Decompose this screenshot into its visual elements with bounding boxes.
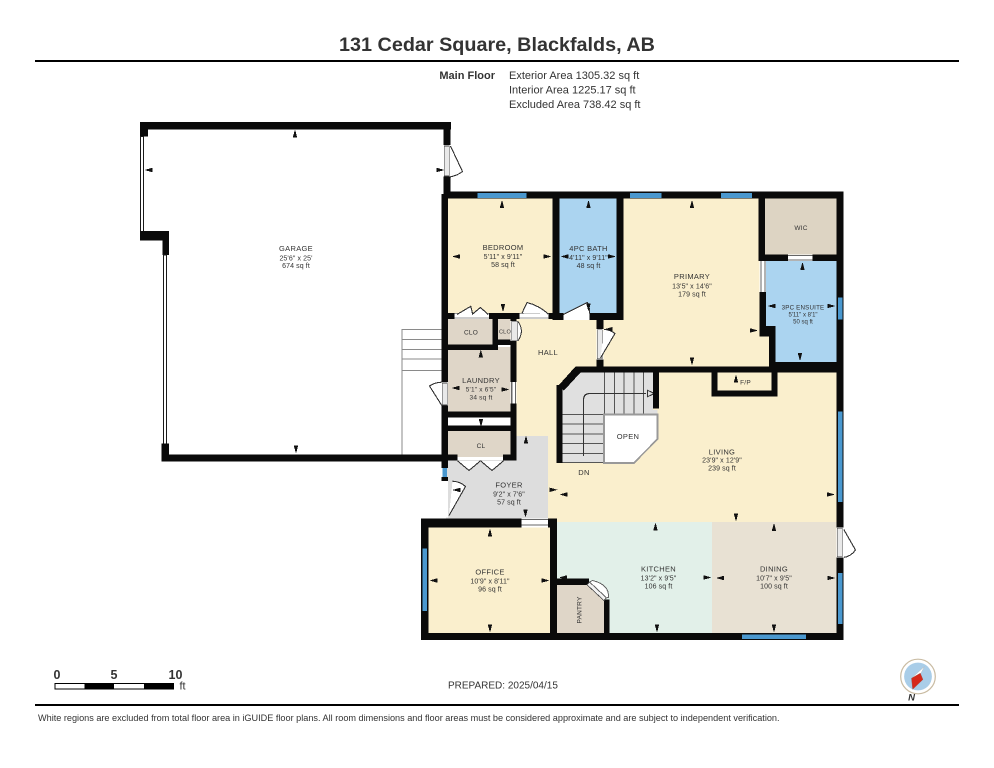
svg-text:GARAGE: GARAGE (279, 244, 313, 253)
svg-text:23'9" x 12'9": 23'9" x 12'9" (702, 458, 742, 465)
svg-text:674 sq ft: 674 sq ft (282, 263, 310, 270)
svg-text:OPEN: OPEN (617, 432, 639, 441)
svg-text:ft: ft (180, 681, 186, 693)
svg-text:WIC: WIC (794, 225, 807, 232)
svg-text:179 sq ft: 179 sq ft (678, 292, 706, 299)
svg-text:106 sq ft: 106 sq ft (645, 584, 673, 591)
svg-text:CL: CL (477, 443, 486, 450)
svg-text:LIVING: LIVING (709, 448, 735, 457)
svg-text:57 sq ft: 57 sq ft (497, 500, 521, 507)
svg-text:N: N (908, 693, 916, 704)
svg-text:25'6" x 25': 25'6" x 25' (279, 256, 312, 263)
svg-text:CLO: CLO (464, 330, 478, 337)
svg-text:LAUNDRY: LAUNDRY (462, 376, 500, 385)
svg-text:13'2" x 9'5": 13'2" x 9'5" (641, 576, 677, 583)
svg-text:239 sq ft: 239 sq ft (708, 466, 736, 473)
svg-text:HALL: HALL (538, 348, 558, 357)
svg-text:DN: DN (578, 468, 589, 477)
svg-text:96 sq ft: 96 sq ft (478, 587, 502, 594)
svg-text:50 sq ft: 50 sq ft (793, 320, 813, 326)
svg-text:PANTRY: PANTRY (577, 596, 584, 623)
svg-text:9'2" x 7'6": 9'2" x 7'6" (493, 492, 525, 499)
svg-text:PRIMARY: PRIMARY (674, 272, 710, 281)
svg-text:KITCHEN: KITCHEN (641, 565, 676, 574)
svg-text:CLO: CLO (499, 330, 512, 336)
svg-text:FOYER: FOYER (495, 481, 523, 490)
svg-text:PREPARED: 2025/04/15: PREPARED: 2025/04/15 (448, 681, 558, 692)
svg-text:0: 0 (54, 668, 61, 682)
svg-text:5'11" x 9'11": 5'11" x 9'11" (484, 254, 523, 261)
svg-text:OFFICE: OFFICE (475, 568, 504, 577)
svg-text:10'7" x 9'5": 10'7" x 9'5" (756, 576, 792, 583)
svg-text:DINING: DINING (760, 565, 788, 574)
svg-text:58 sq ft: 58 sq ft (491, 262, 515, 269)
svg-text:10'9" x 8'11": 10'9" x 8'11" (470, 579, 510, 586)
svg-text:BEDROOM: BEDROOM (483, 243, 524, 252)
svg-text:100 sq ft: 100 sq ft (760, 584, 788, 591)
svg-text:Excluded Area 738.42 sq ft: Excluded Area 738.42 sq ft (509, 99, 640, 111)
svg-text:131 Cedar Square, Blackfalds,: 131 Cedar Square, Blackfalds, AB (339, 34, 655, 56)
svg-text:4PC BATH: 4PC BATH (569, 244, 608, 253)
svg-text:Exterior Area 1305.32 sq ft: Exterior Area 1305.32 sq ft (509, 70, 639, 82)
svg-text:34 sq ft: 34 sq ft (470, 395, 493, 402)
svg-text:48 sq ft: 48 sq ft (577, 263, 601, 270)
svg-text:Interior Area 1225.17 sq ft: Interior Area 1225.17 sq ft (509, 85, 636, 97)
svg-text:13'5" x 14'6": 13'5" x 14'6" (672, 284, 712, 291)
svg-text:White regions are excluded fro: White regions are excluded from total fl… (38, 713, 780, 723)
svg-text:F/P: F/P (740, 380, 751, 387)
svg-text:5'11" x 8'1": 5'11" x 8'1" (788, 313, 817, 319)
svg-text:4'11" x 9'11": 4'11" x 9'11" (569, 255, 608, 262)
svg-text:5'1" x 6'5": 5'1" x 6'5" (466, 387, 497, 394)
svg-text:5: 5 (111, 668, 118, 682)
svg-text:3PC ENSUITE: 3PC ENSUITE (782, 305, 825, 312)
svg-text:Main Floor: Main Floor (439, 70, 495, 82)
